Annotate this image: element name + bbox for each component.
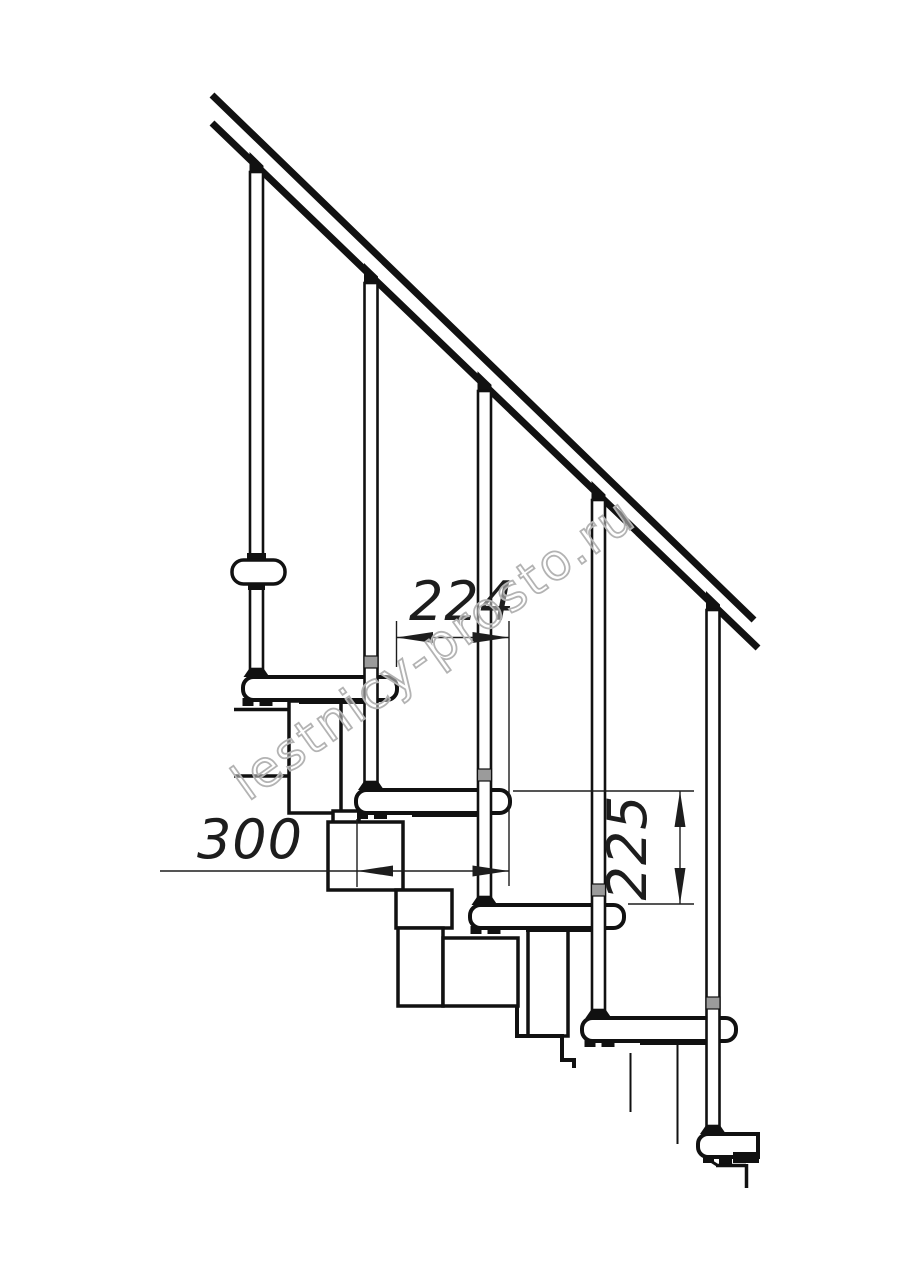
module-box-2b — [396, 890, 452, 928]
baluster-5-collar — [706, 997, 720, 1009]
baluster-3-foot — [472, 897, 498, 905]
tread-1-tab-left — [243, 698, 254, 706]
tread-2-tab-right — [374, 811, 387, 819]
tread-3-band — [526, 926, 598, 932]
dim-225-arrow-up — [675, 791, 686, 827]
tread-1-tab-right — [260, 698, 273, 706]
baluster-1-bracket — [232, 560, 285, 584]
module-box-3a — [443, 938, 518, 1006]
staircase-drawing-svg: 224 300 225 lestnicy-prosto.ru — [0, 0, 914, 1280]
baluster-2-foot — [358, 782, 384, 790]
dim-225-label: 225 — [596, 794, 659, 900]
tread-5-band — [733, 1152, 759, 1163]
tread-4-tab-left — [585, 1039, 596, 1047]
baluster-1-foot — [244, 669, 270, 677]
tread-3-tab-right — [488, 926, 501, 934]
dim-300-label: 300 — [197, 808, 303, 871]
tread-5-tab-right — [719, 1155, 732, 1164]
tread-4-band — [640, 1039, 708, 1045]
watermark-text: lestnicy-prosto.ru — [221, 486, 646, 812]
module-column-3 — [528, 928, 568, 1036]
baluster-5-post — [707, 610, 720, 1126]
baluster-1-bracket-nub-bottom — [248, 583, 265, 590]
tread-2-band — [412, 811, 484, 817]
module-box-2a — [328, 822, 403, 890]
baluster-1-post — [250, 172, 263, 669]
module-column-2 — [398, 928, 443, 1006]
dim-225-arrow-down — [675, 868, 686, 904]
tread-2-tab-left — [357, 811, 368, 819]
technical-drawing: 224 300 225 lestnicy-prosto.ru — [0, 0, 914, 1280]
baluster-3-collar — [478, 769, 492, 781]
baluster-1 — [244, 152, 270, 677]
baluster-5-foot — [700, 1126, 726, 1134]
dimension-rise-225: 225 — [513, 791, 694, 904]
tread-3-tab-left — [471, 926, 482, 934]
baluster-4-post — [592, 500, 605, 1010]
baluster-4-foot — [586, 1010, 612, 1018]
tread-4-tab-right — [602, 1039, 615, 1047]
baluster-5 — [700, 591, 726, 1134]
